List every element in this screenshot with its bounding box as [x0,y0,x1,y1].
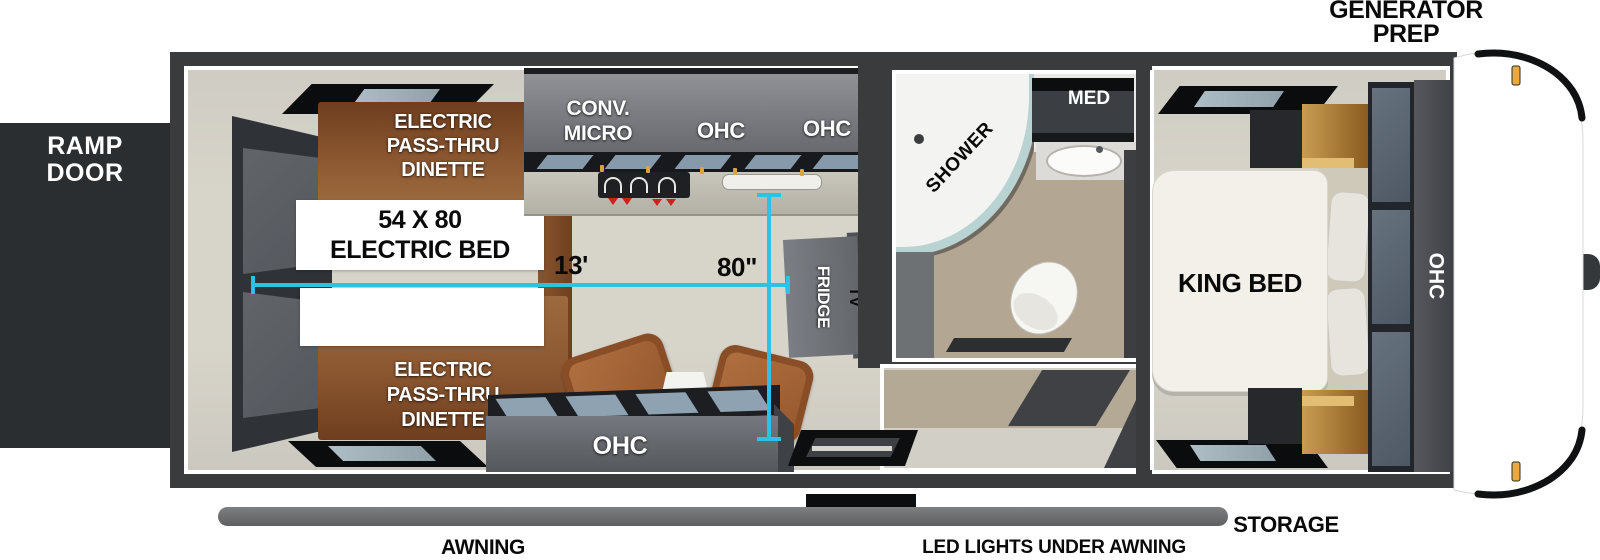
stove-icon [598,172,690,198]
electric-bed-line2: ELECTRIC BED [296,235,544,265]
bathroom-wall-right [1124,150,1136,358]
electric-bed-label-box: 54 X 80 ELECTRIC BED [296,200,544,270]
stove-knob-icon [608,198,618,205]
generator-prep-line2: PREP [1280,22,1532,46]
dinette-bottom-line1: ELECTRIC [318,358,568,383]
dimension-80in-label: 80" [702,252,772,283]
kitchen-ohc-right-label: OHC [794,116,860,142]
entry-step [806,494,916,508]
burner-icon [658,177,676,193]
wardrobe [1368,82,1414,472]
dimension-end-cap [786,276,790,294]
wardrobe-panel [1372,332,1410,466]
valance-slat [605,155,662,169]
storage-label: STORAGE [1206,512,1366,538]
conv-micro-line2: MICRO [538,121,658,146]
generator-prep-label: GENERATOR PREP [1280,0,1532,46]
kitchen-ohc-left-label: OHC [688,118,754,144]
ramp-door-label: RAMP DOOR [0,133,170,187]
nightstand-bottom-edge [1302,396,1354,406]
ramp-door-line2: DOOR [0,160,170,187]
burner-icon [630,177,648,193]
faucet-icon [1096,146,1103,153]
garage-skylight-bottom-pane [328,446,436,461]
front-cap [1450,44,1600,504]
dimension-13ft-label: 13' [536,250,606,281]
dimension-end-cap [757,193,781,197]
dimension-line-13ft [253,283,788,287]
floorplan-canvas: GENERATOR PREP RAMP DOOR ELECTRIC PASS-T… [0,0,1600,560]
generator-prep-line1: GENERATOR [1280,0,1532,22]
conv-micro-line1: CONV. [538,96,658,121]
burner-icon [604,177,622,193]
cabinet-handle-icon [733,168,737,175]
marker-light-icon [1512,462,1520,481]
conv-micro-label: CONV. MICRO [538,96,658,146]
electric-bed-line1: 54 X 80 [296,205,544,235]
wardrobe-panel [1372,210,1410,324]
ohc-slat [707,390,770,412]
dimension-end-cap [757,437,781,441]
stove-knob-icon [652,199,662,206]
ohc-slat [635,392,698,414]
ramp-door-line1: RAMP [0,133,170,160]
dimension-end-cap [251,276,255,294]
dimension-line-80in [767,195,771,441]
bathroom-sink [1046,145,1122,177]
kitchen-sink [722,174,822,190]
led-lights-label: LED LIGHTS UNDER AWNING [894,537,1214,559]
valance-slat [537,155,594,169]
pillow [1325,287,1371,378]
cabinet-handle-icon [646,166,650,173]
bathroom-wall-left [896,252,934,358]
bedroom-skylight-top-pane [1194,91,1284,107]
kitchen-counter [524,170,880,216]
bathroom-mat [946,338,1072,352]
cabinet-handle-icon [800,169,804,176]
electric-bed-platform [300,288,544,346]
ohc-slat [565,395,628,417]
cabinet-handle-icon [600,165,604,172]
pillow [1325,191,1371,284]
wardrobe-panel [1372,88,1410,202]
nightstand-bottom-dark [1248,388,1302,444]
king-bed-label: KING BED [1152,268,1328,299]
stove-knob-icon [666,199,676,206]
awning-label: AWNING [403,536,563,560]
nightstand-top-edge [1302,158,1354,168]
awning-bar [218,507,1228,526]
cabinet-handle-icon [700,167,704,174]
valance-slat [745,155,802,169]
marker-light-icon [1512,66,1520,85]
nightstand-top-dark [1250,110,1304,168]
med-label: MED [1044,88,1134,110]
bedroom-skylight-bottom-pane [1190,445,1276,461]
living-ohc-label: OHC [520,432,720,461]
front-cap-body [1454,51,1583,495]
entry-door-threshold [812,446,892,451]
stove-knob-icon [622,198,632,205]
shower-label: SHOWER [894,92,1026,224]
